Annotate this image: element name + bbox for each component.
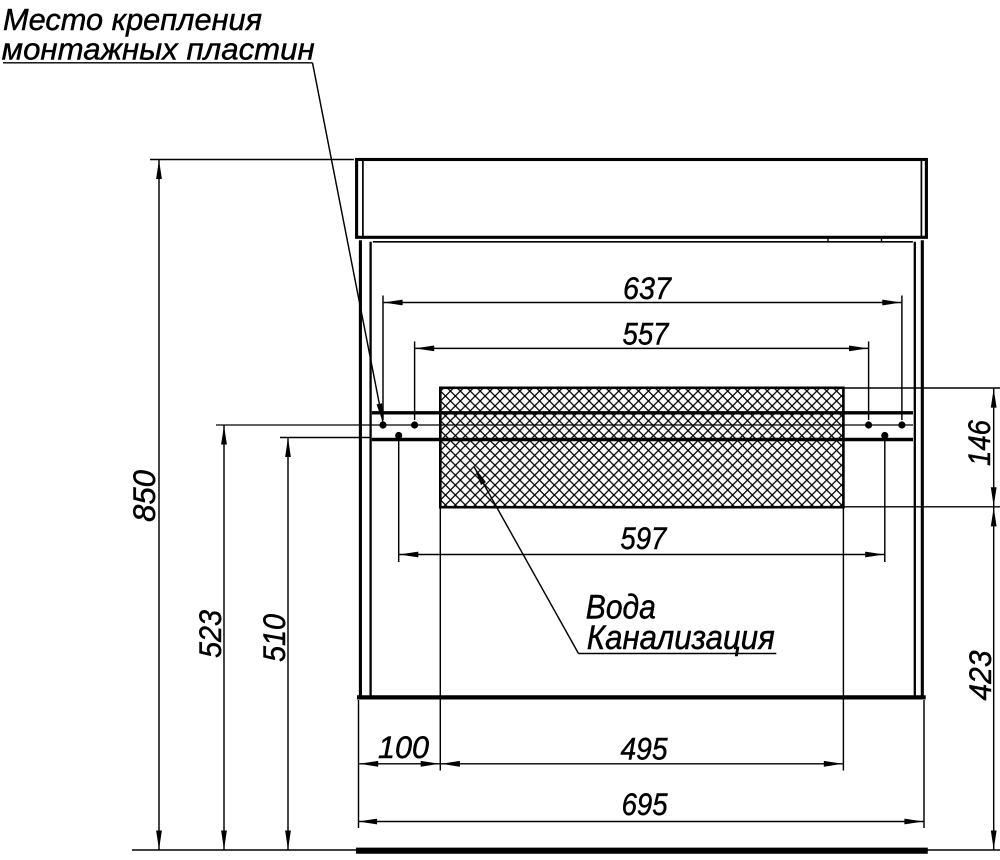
svg-text:597: 597 bbox=[620, 520, 667, 556]
svg-text:557: 557 bbox=[623, 316, 670, 352]
svg-text:695: 695 bbox=[622, 786, 668, 822]
svg-text:монтажных пластин: монтажных пластин bbox=[2, 33, 315, 67]
svg-text:423: 423 bbox=[962, 650, 998, 700]
svg-text:146: 146 bbox=[961, 420, 997, 466]
svg-text:523: 523 bbox=[192, 610, 228, 658]
svg-text:510: 510 bbox=[256, 614, 292, 662]
svg-text:850: 850 bbox=[126, 470, 162, 522]
svg-text:100: 100 bbox=[378, 729, 429, 765]
svg-text:Канализация: Канализация bbox=[587, 619, 775, 657]
svg-text:495: 495 bbox=[621, 731, 668, 767]
svg-text:637: 637 bbox=[623, 270, 672, 306]
